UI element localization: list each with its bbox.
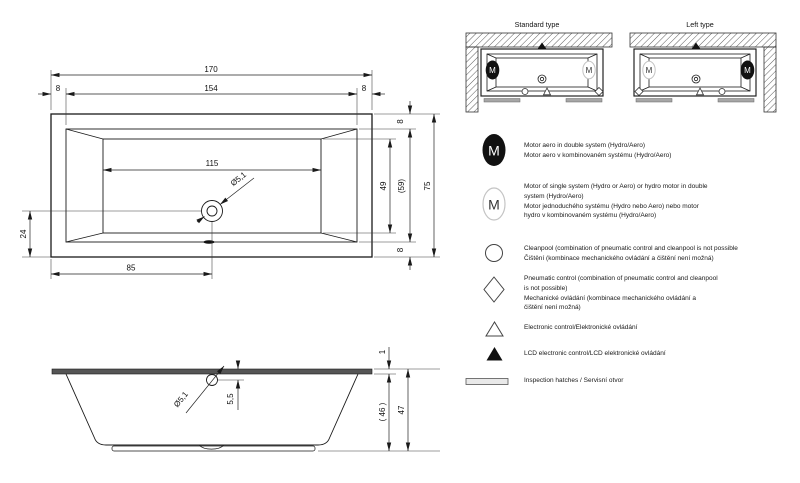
motor-letter: M — [489, 66, 496, 75]
motor-letter: M — [586, 66, 593, 75]
dim-width-basin: 115 — [206, 159, 219, 168]
dim-width-inner: 154 — [204, 84, 218, 93]
bathtub-technical-drawing: 170 8 154 8 115 85 24 8 49 (59) 75 8 Ø5,… — [0, 0, 800, 483]
pneumatic-control-marker — [635, 88, 643, 96]
top-view: 170 8 154 8 115 85 24 8 49 (59) 75 8 Ø5,… — [19, 65, 440, 279]
side-view-dimension-labels: 1 ( 46 ) 47 5,5 Ø5,1 — [172, 349, 406, 421]
legend-item-cleanpool: Cleanpool (combination of pneumatic cont… — [524, 244, 800, 264]
dim-rim-top: 8 — [396, 119, 405, 124]
inspection-hatch-bar — [566, 99, 602, 103]
dim-rim-right: 8 — [362, 84, 367, 93]
cleanpool-circle-icon — [486, 245, 503, 262]
inspection-hatch-bar — [484, 99, 520, 103]
top-view-dimension-labels: 170 8 154 8 115 85 24 8 49 (59) 75 8 Ø5,… — [19, 65, 432, 273]
side-view-outline — [66, 374, 358, 451]
side-view-dimension-lines — [186, 347, 408, 451]
inspection-hatch-bar — [636, 99, 672, 103]
legend-item-electronic: Electronic control/Elektronické ovládání — [524, 323, 800, 333]
dim-width-total: 170 — [204, 65, 218, 74]
dim-drain-diameter-top: Ø5,1 — [229, 170, 249, 188]
legend-item-pneumatic: Pneumatic control (combination of pneuma… — [524, 274, 800, 313]
dim-height-inner: (59) — [397, 179, 406, 194]
top-view-outline — [51, 114, 372, 257]
legend-icons: M M — [466, 134, 508, 385]
electronic-control-marker — [697, 88, 704, 95]
dim-rim-left: 8 — [56, 84, 61, 93]
dim-rim-bottom: 8 — [396, 247, 405, 252]
dim-drain-diameter-side: Ø5,1 — [172, 389, 190, 409]
motor-letter: M — [744, 66, 751, 75]
left-type-title: Left type — [640, 20, 760, 29]
dim-drain-from-bottom: 24 — [19, 229, 28, 238]
drawing-canvas: 170 8 154 8 115 85 24 8 49 (59) 75 8 Ø5,… — [0, 0, 800, 483]
side-view: 1 ( 46 ) 47 5,5 Ø5,1 — [52, 347, 440, 451]
pneumatic-diamond-icon — [484, 277, 504, 302]
legend-item-motor-aero: Motor aero in double system (Hydro/Aero)… — [524, 141, 800, 161]
dim-drain-to-rim: 5,5 — [226, 393, 235, 405]
cleanpool-marker — [522, 89, 528, 95]
pneumatic-control-marker — [595, 88, 603, 96]
electronic-triangle-icon — [486, 322, 503, 336]
inspection-hatch-bar — [718, 99, 754, 103]
overflow-mark — [204, 240, 215, 244]
dim-drain-from-left: 85 — [127, 264, 136, 273]
rim-bar — [52, 369, 372, 374]
dim-height-basin: 49 — [379, 181, 388, 190]
dim-height-total: 75 — [423, 181, 432, 190]
top-view-dimension-lines — [30, 75, 434, 274]
motor-letter: M — [488, 143, 500, 159]
inspection-hatch-icon — [466, 379, 508, 385]
dim-rim-thickness: 1 — [378, 349, 387, 354]
motor-letter: M — [488, 197, 500, 213]
electronic-control-marker — [544, 88, 551, 95]
top-view-extension-lines — [22, 70, 440, 279]
drain-top-view — [202, 201, 223, 222]
lcd-triangle-filled-icon — [487, 347, 503, 361]
legend-item-motor-single: Motor of single system (Hydro or Aero) o… — [524, 182, 800, 221]
motor-letter: M — [646, 66, 653, 75]
left-type-diagram: M M — [630, 33, 776, 112]
legend-item-inspection: Inspection hatches / Servisní otvor — [524, 376, 800, 386]
dim-height-total-side: 47 — [397, 405, 406, 414]
standard-type-title: Standard type — [477, 20, 597, 29]
standard-type-diagram: M M — [466, 33, 612, 112]
cleanpool-marker — [719, 89, 725, 95]
dim-depth-inner: ( 46 ) — [378, 402, 387, 421]
legend-item-lcd: LCD electronic control/LCD elektronické … — [524, 349, 800, 359]
